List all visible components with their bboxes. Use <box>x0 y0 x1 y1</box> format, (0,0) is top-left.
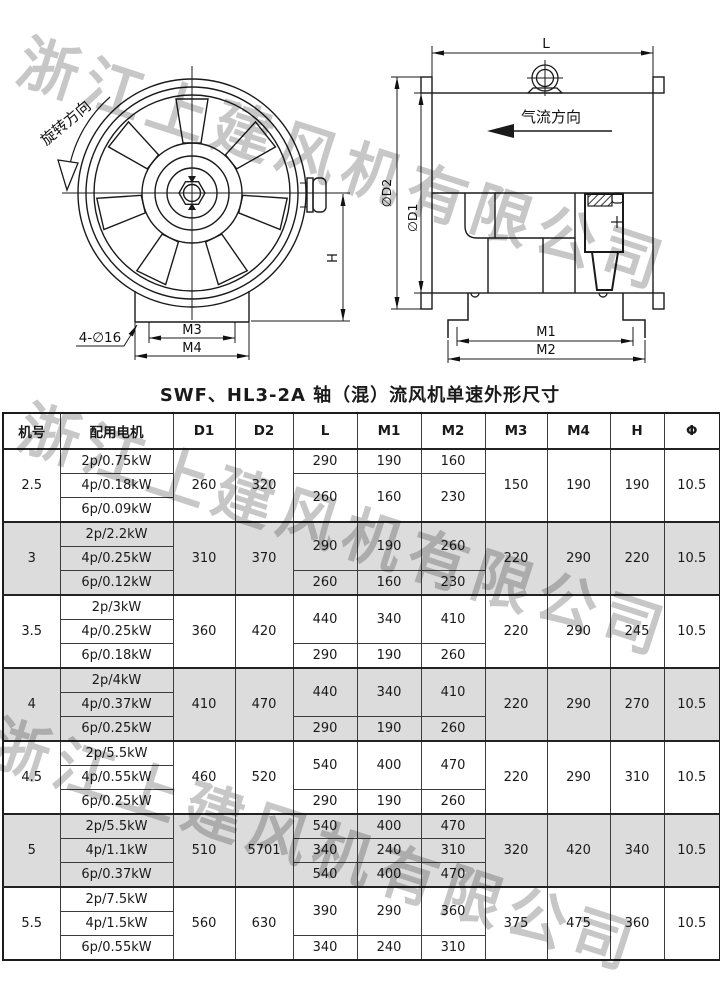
cell-motor: 6p/0.55kW <box>60 936 173 961</box>
cell-d2: 630 <box>235 887 293 960</box>
cell-motor: 4p/0.25kW <box>60 620 173 644</box>
cell-h: 245 <box>610 595 664 668</box>
cell-d2: 520 <box>235 741 293 814</box>
cell-l: 540 <box>293 863 357 888</box>
cell-motor: 6p/0.18kW <box>60 644 173 669</box>
table-row: 42p/4kW41047044034041022029027010.5 <box>3 668 720 693</box>
cell-size: 3 <box>3 522 60 595</box>
cell-m1: 290 <box>357 887 421 936</box>
cell-m2: 260 <box>421 644 485 669</box>
cell-m1: 340 <box>357 595 421 644</box>
column-header: M4 <box>547 413 610 449</box>
cell-d2: 5701 <box>235 814 293 887</box>
column-header: D1 <box>173 413 235 449</box>
cell-m1: 190 <box>357 449 421 474</box>
cell-motor: 4p/0.25kW <box>60 547 173 571</box>
cell-phi: 10.5 <box>664 887 720 960</box>
side-view-drawing: 气流方向 L <box>379 36 664 363</box>
cell-m1: 160 <box>357 571 421 596</box>
cell-d2: 370 <box>235 522 293 595</box>
cell-h: 220 <box>610 522 664 595</box>
cell-m2: 160 <box>421 449 485 474</box>
dim-m1-label: M1 <box>536 325 556 340</box>
cell-m3: 220 <box>485 522 547 595</box>
cell-l: 260 <box>293 571 357 596</box>
cell-m1: 400 <box>357 814 421 839</box>
cell-l: 290 <box>293 717 357 742</box>
cell-m2: 470 <box>421 741 485 790</box>
cell-l: 290 <box>293 644 357 669</box>
cell-l: 290 <box>293 790 357 815</box>
cell-size: 4.5 <box>3 741 60 814</box>
dim-m2: M2 <box>448 340 645 363</box>
eye-bolt <box>527 60 563 96</box>
cell-m4: 290 <box>547 595 610 668</box>
airflow-direction: 气流方向 <box>487 108 612 138</box>
cell-h: 310 <box>610 741 664 814</box>
cell-phi: 10.5 <box>664 814 720 887</box>
cell-motor: 4p/0.37kW <box>60 693 173 717</box>
cell-motor: 6p/0.37kW <box>60 863 173 888</box>
cell-motor: 4p/0.18kW <box>60 474 173 498</box>
cell-l: 290 <box>293 449 357 474</box>
cell-motor: 6p/0.09kW <box>60 498 173 523</box>
cell-phi: 10.5 <box>664 449 720 522</box>
cell-phi: 10.5 <box>664 741 720 814</box>
cell-m1: 190 <box>357 717 421 742</box>
cell-m3: 220 <box>485 668 547 741</box>
cell-m2: 230 <box>421 571 485 596</box>
cell-size: 2.5 <box>3 449 60 522</box>
cell-d1: 310 <box>173 522 235 595</box>
cell-m2: 470 <box>421 863 485 888</box>
column-header: L <box>293 413 357 449</box>
cell-m2: 260 <box>421 522 485 571</box>
table-row: 5.52p/7.5kW56063039029036037547536010.5 <box>3 887 720 912</box>
rotation-arrowhead <box>58 160 78 190</box>
cell-d2: 320 <box>235 449 293 522</box>
cell-d1: 460 <box>173 741 235 814</box>
technical-drawings: 旋转方向 M3 M4 4-∅16 H <box>0 0 720 380</box>
cell-phi: 10.5 <box>664 522 720 595</box>
cell-l: 290 <box>293 522 357 571</box>
cell-l: 340 <box>293 936 357 961</box>
cell-size: 5 <box>3 814 60 887</box>
bolt-callout: 4-∅16 <box>76 325 137 346</box>
cell-d2: 420 <box>235 595 293 668</box>
cell-m1: 160 <box>357 474 421 523</box>
cell-motor: 2p/4kW <box>60 668 173 693</box>
cell-motor: 6p/0.12kW <box>60 571 173 596</box>
cell-m3: 320 <box>485 814 547 887</box>
cell-m2: 230 <box>421 474 485 523</box>
cell-d1: 360 <box>173 595 235 668</box>
column-header: M1 <box>357 413 421 449</box>
cell-l: 260 <box>293 474 357 523</box>
cell-m4: 290 <box>547 668 610 741</box>
dim-d2-label: ∅D2 <box>379 179 394 207</box>
dim-d1: ∅D1 <box>405 93 432 293</box>
cell-motor: 2p/7.5kW <box>60 887 173 912</box>
cell-motor: 2p/5.5kW <box>60 741 173 766</box>
spec-table-container: 机号配用电机D1D2LM1M2M3M4HΦ 2.52p/0.75kW260320… <box>2 412 719 961</box>
cell-motor: 4p/1.5kW <box>60 912 173 936</box>
cell-motor: 6p/0.25kW <box>60 790 173 815</box>
airflow-arrowhead <box>487 124 514 138</box>
cell-m4: 290 <box>547 741 610 814</box>
cell-motor: 2p/2.2kW <box>60 522 173 547</box>
cell-m2: 260 <box>421 717 485 742</box>
cell-m1: 190 <box>357 522 421 571</box>
column-header: M3 <box>485 413 547 449</box>
table-row: 52p/5.5kW510570154040047032042034010.5 <box>3 814 720 839</box>
bolt-callout-label: 4-∅16 <box>79 330 121 346</box>
cell-m2: 260 <box>421 790 485 815</box>
cell-m3: 220 <box>485 595 547 668</box>
cell-l: 440 <box>293 595 357 644</box>
cell-size: 3.5 <box>3 595 60 668</box>
cell-m4: 190 <box>547 449 610 522</box>
table-row: 2.52p/0.75kW26032029019016015019019010.5 <box>3 449 720 474</box>
cell-h: 270 <box>610 668 664 741</box>
cell-m2: 310 <box>421 839 485 863</box>
cell-m2: 310 <box>421 936 485 961</box>
cell-m2: 410 <box>421 668 485 717</box>
airflow-label: 气流方向 <box>521 108 581 126</box>
cell-l: 440 <box>293 668 357 717</box>
dim-d1-label: ∅D1 <box>405 204 420 232</box>
cell-phi: 10.5 <box>664 595 720 668</box>
cell-m1: 190 <box>357 790 421 815</box>
cell-m4: 290 <box>547 522 610 595</box>
cell-m4: 475 <box>547 887 610 960</box>
dim-l: L <box>432 36 653 88</box>
front-view-drawing: 旋转方向 M3 M4 4-∅16 H <box>37 66 350 360</box>
cell-l: 540 <box>293 741 357 790</box>
cell-m1: 240 <box>357 839 421 863</box>
dim-d2: ∅D2 <box>379 77 421 309</box>
spec-table-body: 2.52p/0.75kW26032029019016015019019010.5… <box>3 449 720 960</box>
column-header: M2 <box>421 413 485 449</box>
cell-d1: 260 <box>173 449 235 522</box>
cell-motor: 2p/5.5kW <box>60 814 173 839</box>
cell-m1: 340 <box>357 668 421 717</box>
dim-m4-label: M4 <box>182 341 202 356</box>
column-header: H <box>610 413 664 449</box>
cell-l: 340 <box>293 839 357 863</box>
cell-d1: 560 <box>173 887 235 960</box>
cell-size: 5.5 <box>3 887 60 960</box>
cell-motor: 2p/0.75kW <box>60 449 173 474</box>
rotation-direction-label: 旋转方向 <box>37 97 95 149</box>
cell-m2: 410 <box>421 595 485 644</box>
cell-m3: 375 <box>485 887 547 960</box>
motor-assembly <box>465 193 575 293</box>
column-header: D2 <box>235 413 293 449</box>
cell-phi: 10.5 <box>664 668 720 741</box>
cell-motor: 2p/3kW <box>60 595 173 620</box>
column-header: Φ <box>664 413 720 449</box>
cell-m1: 190 <box>357 644 421 669</box>
spec-table: 机号配用电机D1D2LM1M2M3M4HΦ 2.52p/0.75kW260320… <box>2 412 720 961</box>
dim-m3: M3 <box>149 322 235 343</box>
cell-m3: 220 <box>485 741 547 814</box>
cell-h: 340 <box>610 814 664 887</box>
cell-h: 360 <box>610 887 664 960</box>
cell-size: 4 <box>3 668 60 741</box>
cell-motor: 6p/0.25kW <box>60 717 173 742</box>
table-row: 32p/2.2kW31037029019026022029022010.5 <box>3 522 720 547</box>
cell-m3: 150 <box>485 449 547 522</box>
header-row: 机号配用电机D1D2LM1M2M3M4HΦ <box>3 413 720 449</box>
column-header: 配用电机 <box>60 413 173 449</box>
dim-l-label: L <box>542 36 550 52</box>
cell-l: 390 <box>293 887 357 936</box>
cell-motor: 4p/1.1kW <box>60 839 173 863</box>
table-row: 3.52p/3kW36042044034041022029024510.5 <box>3 595 720 620</box>
motor-foot <box>592 252 618 290</box>
cell-h: 190 <box>610 449 664 522</box>
dim-m2-label: M2 <box>536 343 556 358</box>
cell-m4: 420 <box>547 814 610 887</box>
cell-motor: 4p/0.55kW <box>60 766 173 790</box>
dim-m3-label: M3 <box>182 323 202 338</box>
cell-d2: 470 <box>235 668 293 741</box>
cell-m1: 400 <box>357 863 421 888</box>
side-terminal-box <box>300 178 326 212</box>
page-title: SWF、HL3-2A 轴（混）流风机单速外形尺寸 <box>0 382 720 410</box>
table-row: 4.52p/5.5kW46052054040047022029031010.5 <box>3 741 720 766</box>
column-header: 机号 <box>3 413 60 449</box>
junction-box <box>585 193 623 290</box>
cell-l: 540 <box>293 814 357 839</box>
cell-m1: 400 <box>357 741 421 790</box>
cell-d1: 510 <box>173 814 235 887</box>
cell-m2: 360 <box>421 887 485 936</box>
cell-m1: 240 <box>357 936 421 961</box>
dim-h-label: H <box>326 253 341 263</box>
cell-d1: 410 <box>173 668 235 741</box>
cell-m2: 470 <box>421 814 485 839</box>
